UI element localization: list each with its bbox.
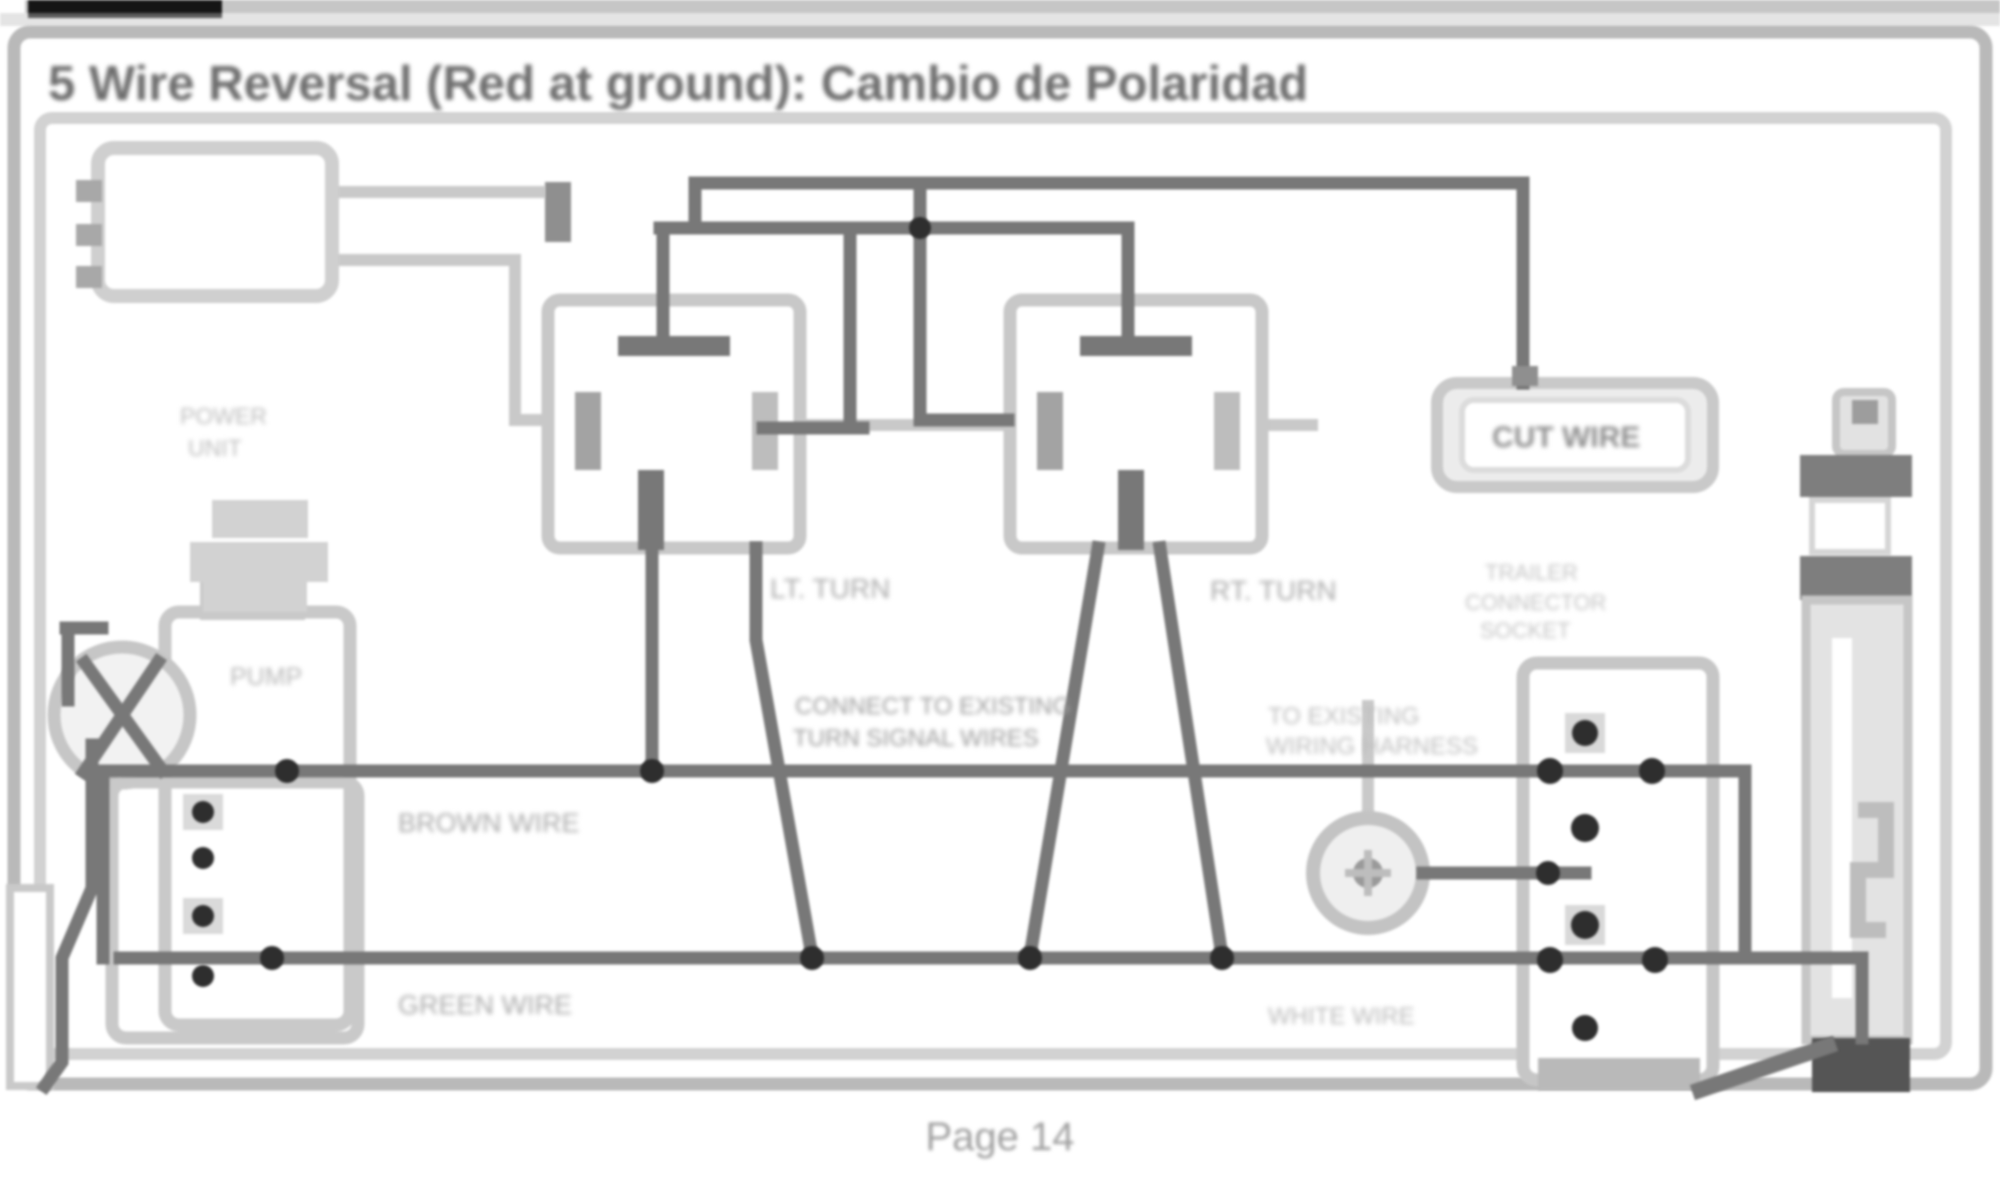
diagram-canvas: 5 Wire Reversal (Red at ground): Cambio … [0,0,2000,1197]
title-group: 5 Wire Reversal (Red at ground): Cambio … [48,57,1308,111]
wire-to-right-switch-left [920,183,1008,420]
label-center-note-2: TURN SIGNAL WIRES [793,725,1039,752]
light-wire-2 [332,260,545,420]
switch-terminal [1214,392,1240,470]
switch-terminal [575,392,601,470]
label-right-note-1: TO EXISTING [1268,703,1420,730]
label-rt-turn: RT. TURN [1210,575,1337,606]
lead-nub [545,182,571,242]
junction-dots [192,217,1668,1041]
right-switch-down-1 [1030,548,1098,956]
label-cut-wire: CUT WIRE [1492,421,1640,454]
connector-pin [76,266,102,288]
switch-terminal [1037,392,1063,470]
label-wire-right: WHITE WIRE [1268,1003,1415,1030]
page-number-caption: Page 14 [925,1115,1074,1159]
scan-artifact-bands [0,0,2000,26]
label-wire-lower: GREEN WIRE [398,990,572,1020]
vehicle-connector [76,148,332,296]
label-pump-note-1: POWER [180,403,267,429]
connector-pin [76,224,102,246]
cap-band [212,500,308,538]
label-center-note-1: CONNECT TO EXISTING [795,693,1071,720]
block-base-bar [1538,1058,1700,1090]
label-pump-note-2: UNIT [188,435,242,461]
caption-group: Page 14 [925,1115,1074,1159]
label-right-note-2: WIRING HARNESS [1266,733,1478,760]
label-wire-upper: BROWN WIRE [398,808,580,838]
connector-pin [76,180,102,202]
label-trailer-2: CONNECTOR [1465,590,1606,615]
binder-notch [10,888,50,1086]
diagram-labels: LT. TURN RT. TURN CONNECT TO EXISTING TU… [180,403,1640,1030]
cap-band [203,582,307,612]
top-black-bar [28,0,222,15]
page-title: 5 Wire Reversal (Red at ground): Cambio … [48,57,1308,111]
scanned-wiring-diagram-page: 5 Wire Reversal (Red at ground): Cambio … [0,0,2000,1197]
label-trailer-1: TRAILER [1485,560,1578,585]
label-lt-turn: LT. TURN [770,573,890,604]
left-switch-down-2 [756,548,812,956]
left-switch-top-tee [618,336,730,356]
breakaway-switch [1313,818,1423,928]
label-pump: PUMP [230,663,302,691]
cap-band [190,542,328,582]
right-switch-down-2 [1160,548,1222,956]
right-switch-top-tee [1080,336,1192,356]
pump-reservoir [165,500,350,1025]
components [54,148,1912,1092]
lead-nub [1512,366,1538,386]
label-trailer-3: SOCKET [1480,618,1570,643]
